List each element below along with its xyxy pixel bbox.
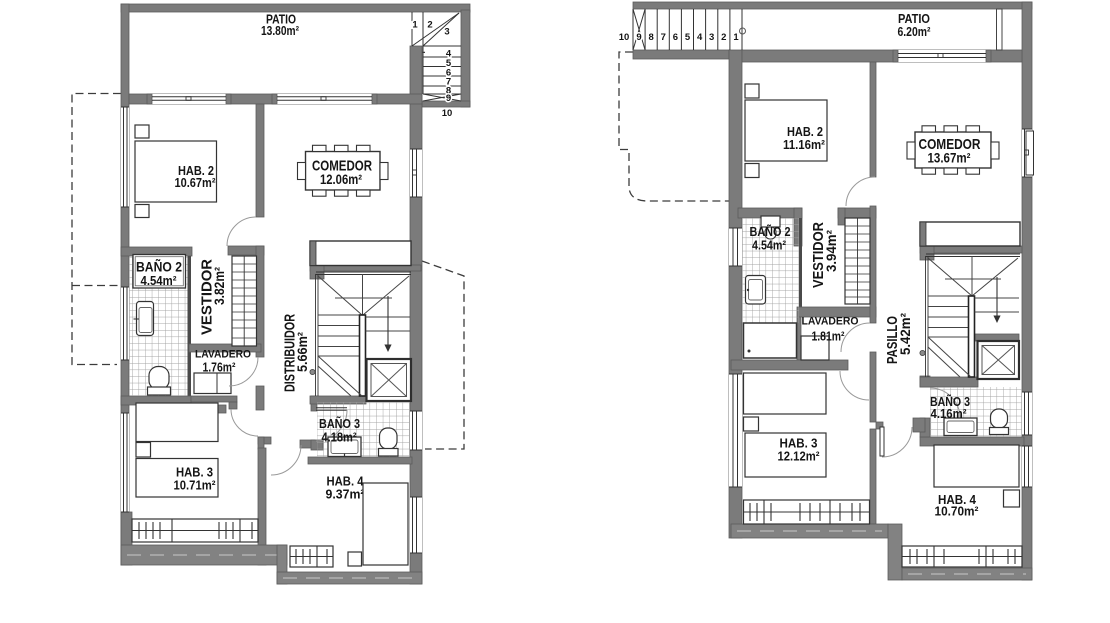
svg-text:5.42m²: 5.42m² bbox=[898, 313, 913, 355]
svg-text:9: 9 bbox=[636, 32, 641, 43]
svg-text:6: 6 bbox=[673, 32, 678, 43]
svg-text:10.70m²: 10.70m² bbox=[935, 505, 979, 519]
svg-text:4.54m²: 4.54m² bbox=[141, 273, 178, 288]
svg-text:3.82m²: 3.82m² bbox=[212, 267, 227, 305]
svg-text:4.18m²: 4.18m² bbox=[322, 431, 357, 445]
svg-text:3: 3 bbox=[709, 32, 714, 43]
svg-text:LAVADERO: LAVADERO bbox=[195, 349, 251, 361]
svg-text:12.12m²: 12.12m² bbox=[778, 450, 820, 464]
svg-text:HAB. 4: HAB. 4 bbox=[327, 474, 365, 489]
svg-text:HAB. 3: HAB. 3 bbox=[176, 465, 213, 480]
svg-text:BAÑO 2: BAÑO 2 bbox=[750, 224, 791, 239]
svg-text:3: 3 bbox=[444, 27, 449, 38]
svg-text:2: 2 bbox=[427, 20, 432, 31]
svg-text:4.16m²: 4.16m² bbox=[931, 407, 967, 421]
svg-text:5: 5 bbox=[685, 32, 691, 43]
svg-text:6.20m²: 6.20m² bbox=[898, 25, 931, 39]
svg-text:7: 7 bbox=[661, 32, 666, 43]
svg-text:3.94m²: 3.94m² bbox=[824, 230, 839, 272]
svg-text:13.80m²: 13.80m² bbox=[261, 24, 299, 38]
svg-text:1.81m²: 1.81m² bbox=[812, 330, 845, 344]
svg-text:LAVADERO: LAVADERO bbox=[802, 316, 859, 328]
svg-text:10.67m²: 10.67m² bbox=[175, 176, 216, 190]
svg-text:4.54m²: 4.54m² bbox=[752, 239, 786, 253]
svg-text:10.71m²: 10.71m² bbox=[174, 479, 216, 493]
svg-text:2: 2 bbox=[721, 32, 726, 43]
svg-text:10: 10 bbox=[442, 108, 453, 119]
svg-text:1: 1 bbox=[733, 32, 739, 43]
svg-text:9: 9 bbox=[446, 93, 451, 104]
svg-text:11.16m²: 11.16m² bbox=[783, 138, 825, 152]
svg-text:12.06m²: 12.06m² bbox=[320, 172, 362, 187]
svg-text:8: 8 bbox=[649, 32, 654, 43]
svg-text:13.67m²: 13.67m² bbox=[928, 151, 971, 166]
svg-text:BAÑO 2: BAÑO 2 bbox=[136, 258, 182, 275]
svg-text:PATIO: PATIO bbox=[898, 11, 930, 26]
svg-text:4: 4 bbox=[697, 32, 703, 43]
svg-text:5.66m²: 5.66m² bbox=[295, 332, 310, 372]
svg-text:HAB. 2: HAB. 2 bbox=[787, 124, 823, 139]
svg-text:1: 1 bbox=[412, 20, 418, 31]
svg-text:10: 10 bbox=[619, 32, 630, 43]
svg-text:1.76m²: 1.76m² bbox=[203, 361, 236, 375]
svg-text:BAÑO 3: BAÑO 3 bbox=[319, 416, 360, 431]
svg-text:9.37m²: 9.37m² bbox=[326, 488, 365, 502]
svg-text:HAB. 3: HAB. 3 bbox=[780, 436, 818, 451]
